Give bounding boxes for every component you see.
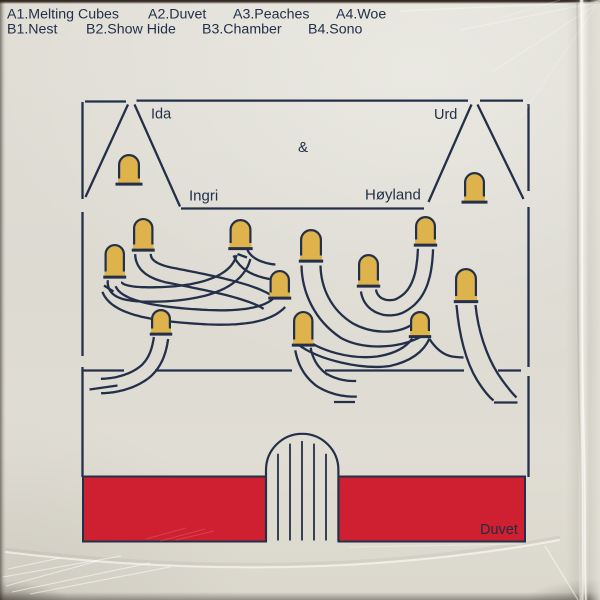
- svg-text:A2.Duvet: A2.Duvet: [148, 7, 206, 23]
- svg-text:B3.Chamber: B3.Chamber: [202, 22, 282, 38]
- svg-text:A3.Peaches: A3.Peaches: [233, 7, 310, 23]
- svg-text:&: &: [298, 139, 308, 156]
- svg-text:Høyland: Høyland: [365, 187, 421, 204]
- svg-text:A1.Melting Cubes: A1.Melting Cubes: [7, 7, 119, 23]
- svg-text:B4.Sono: B4.Sono: [308, 22, 363, 38]
- svg-text:Ingri: Ingri: [189, 188, 218, 205]
- svg-text:A4.Woe: A4.Woe: [336, 7, 386, 23]
- svg-text:Duvet: Duvet: [480, 522, 518, 538]
- svg-text:Urd: Urd: [434, 107, 457, 123]
- svg-text:B2.Show Hide: B2.Show Hide: [86, 22, 176, 38]
- svg-text:Ida: Ida: [151, 107, 172, 123]
- svg-text:B1.Nest: B1.Nest: [7, 22, 58, 38]
